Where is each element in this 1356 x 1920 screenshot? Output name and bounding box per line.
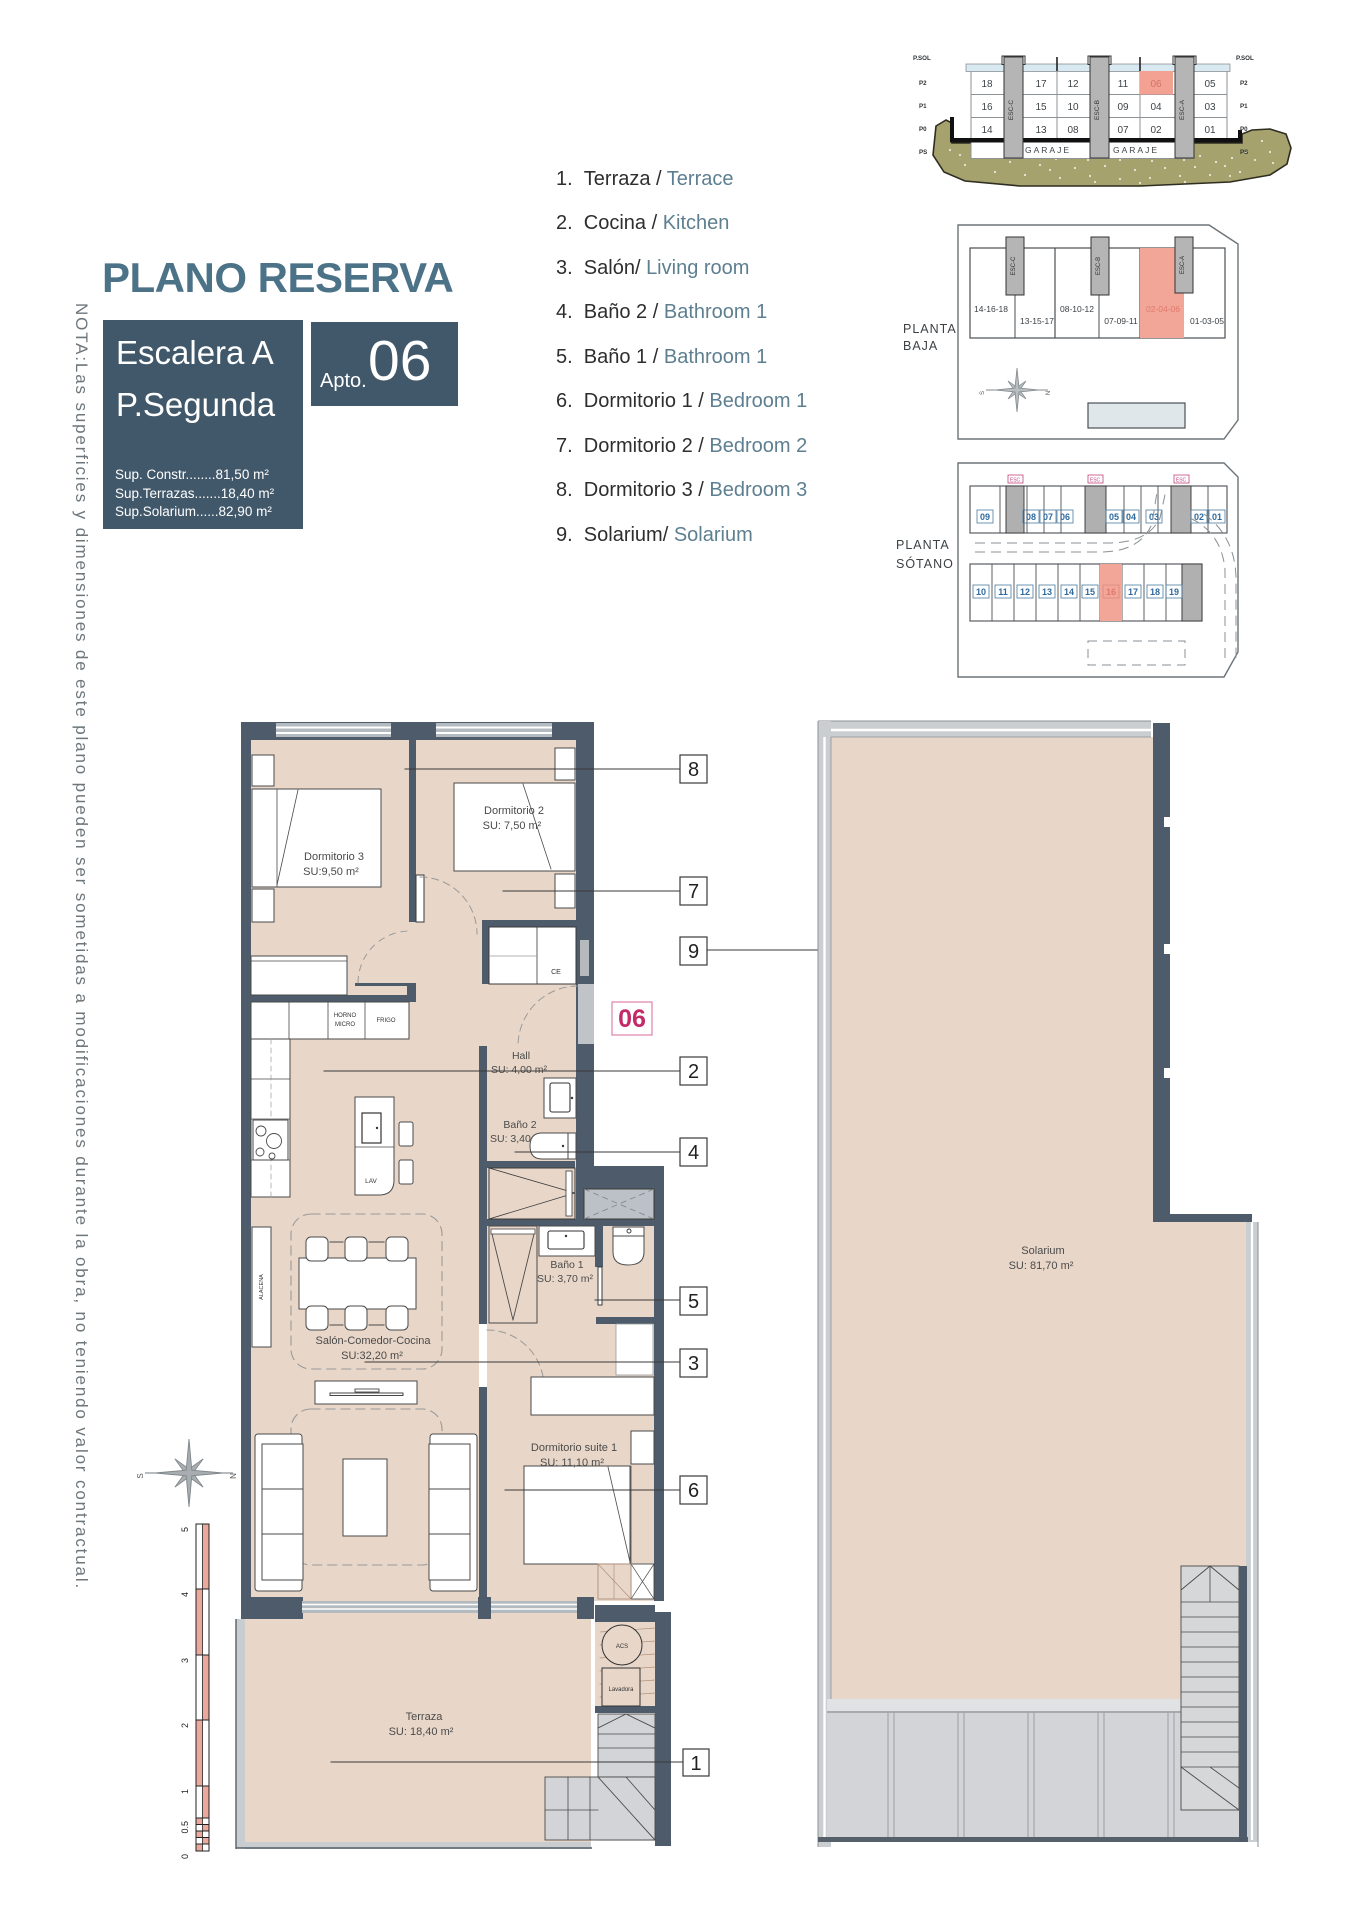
svg-text:ESC-B: ESC-B <box>1096 257 1102 275</box>
svg-text:02: 02 <box>1150 125 1162 136</box>
svg-text:ESC-B: ESC-B <box>1094 100 1101 120</box>
svg-text:SU: 81,70 m²: SU: 81,70 m² <box>1009 1260 1074 1272</box>
svg-text:ESC-C: ESC-C <box>1008 100 1015 121</box>
svg-text:13-15-17: 13-15-17 <box>1020 316 1054 326</box>
svg-text:N: N <box>1046 391 1052 395</box>
svg-text:SU: 3,70 m²: SU: 3,70 m² <box>537 1273 594 1285</box>
svg-text:ESC: ESC <box>1090 478 1101 484</box>
svg-text:03: 03 <box>1204 102 1216 113</box>
svg-text:07-09-11: 07-09-11 <box>1104 316 1138 326</box>
svg-text:02-04-06: 02-04-06 <box>1146 304 1180 314</box>
svg-text:12: 12 <box>1020 587 1030 597</box>
svg-text:16: 16 <box>1106 587 1116 597</box>
svg-text:0.5: 0.5 <box>180 1821 190 1834</box>
svg-text:S: S <box>980 391 986 395</box>
svg-text:Salón-Comedor-Cocina: Salón-Comedor-Cocina <box>316 1335 432 1347</box>
svg-text:S: S <box>136 1473 145 1478</box>
svg-text:GARAJE: GARAJE <box>1025 145 1071 155</box>
svg-text:SU:32,20 m²: SU:32,20 m² <box>341 1350 403 1362</box>
svg-text:Dormitorio 3: Dormitorio 3 <box>304 851 364 863</box>
svg-text:Terraza: Terraza <box>406 1711 444 1723</box>
svg-text:08-10-12: 08-10-12 <box>1060 304 1094 314</box>
svg-text:17: 17 <box>1128 587 1138 597</box>
svg-text:Lavadora: Lavadora <box>608 1687 634 1693</box>
svg-text:11: 11 <box>998 587 1008 597</box>
svg-text:08: 08 <box>1067 125 1079 136</box>
svg-text:04: 04 <box>1126 512 1136 522</box>
svg-text:ALACENA: ALACENA <box>259 1274 265 1300</box>
svg-text:P2: P2 <box>919 80 927 87</box>
svg-text:16: 16 <box>981 102 993 113</box>
svg-text:1: 1 <box>180 1789 190 1794</box>
svg-text:SU: 11,10 m²: SU: 11,10 m² <box>540 1457 604 1469</box>
svg-text:Solarium: Solarium <box>1021 1245 1064 1257</box>
svg-text:06: 06 <box>1060 512 1070 522</box>
svg-text:1: 1 <box>690 1753 701 1775</box>
svg-text:P1: P1 <box>1240 103 1248 110</box>
svg-text:18: 18 <box>1150 587 1160 597</box>
svg-text:0: 0 <box>180 1854 190 1859</box>
svg-text:4: 4 <box>688 1142 699 1164</box>
svg-text:10: 10 <box>1067 102 1079 113</box>
svg-text:P0: P0 <box>919 126 927 133</box>
svg-text:PS: PS <box>1240 149 1248 156</box>
svg-text:P.SOL: P.SOL <box>1236 55 1254 62</box>
svg-text:P.SOL: P.SOL <box>913 55 931 62</box>
svg-text:5: 5 <box>180 1527 190 1532</box>
svg-text:ESC: ESC <box>1010 478 1021 484</box>
svg-text:8: 8 <box>688 759 699 781</box>
svg-text:18: 18 <box>981 79 993 90</box>
svg-text:PS: PS <box>919 149 927 156</box>
svg-text:3: 3 <box>688 1353 699 1375</box>
svg-text:04: 04 <box>1150 102 1162 113</box>
svg-text:12: 12 <box>1067 79 1079 90</box>
svg-text:PLANTA: PLANTA <box>903 322 957 336</box>
svg-text:5: 5 <box>688 1291 699 1313</box>
svg-text:01: 01 <box>1212 512 1222 522</box>
svg-text:SU:9,50 m²: SU:9,50 m² <box>303 866 359 878</box>
svg-text:ESC: ESC <box>1176 478 1187 484</box>
svg-text:01: 01 <box>1204 125 1216 136</box>
svg-text:SU: 7,50 m²: SU: 7,50 m² <box>483 820 542 832</box>
svg-text:CE: CE <box>551 969 561 976</box>
svg-text:Dormitorio suite 1: Dormitorio suite 1 <box>531 1442 617 1454</box>
svg-text:09: 09 <box>980 512 990 522</box>
svg-text:19: 19 <box>1169 587 1179 597</box>
svg-text:13: 13 <box>1042 587 1052 597</box>
svg-text:11: 11 <box>1118 79 1129 90</box>
svg-text:08: 08 <box>1026 512 1036 522</box>
svg-text:SÓTANO: SÓTANO <box>896 556 954 571</box>
svg-text:P1: P1 <box>919 103 927 110</box>
svg-text:MICRO: MICRO <box>335 1022 355 1028</box>
svg-text:6: 6 <box>688 1480 699 1502</box>
svg-text:Hall: Hall <box>512 1050 530 1062</box>
svg-text:14: 14 <box>1064 587 1074 597</box>
svg-text:01-03-05: 01-03-05 <box>1190 316 1224 326</box>
svg-text:06: 06 <box>618 1005 646 1033</box>
svg-text:7: 7 <box>688 881 699 903</box>
svg-text:17: 17 <box>1035 79 1047 90</box>
svg-text:LAV: LAV <box>365 1178 377 1185</box>
svg-text:4: 4 <box>180 1592 190 1597</box>
svg-text:9: 9 <box>688 941 699 963</box>
svg-text:14: 14 <box>981 125 993 136</box>
svg-text:09: 09 <box>1117 102 1129 113</box>
svg-text:P2: P2 <box>1240 80 1248 87</box>
svg-text:HORNO: HORNO <box>334 1013 357 1019</box>
svg-text:FRIGO: FRIGO <box>377 1018 396 1024</box>
svg-text:PLANTA: PLANTA <box>896 538 950 552</box>
svg-text:07: 07 <box>1043 512 1053 522</box>
svg-text:2: 2 <box>688 1061 699 1083</box>
svg-text:ESC-A: ESC-A <box>1180 256 1186 274</box>
svg-text:3: 3 <box>180 1658 190 1663</box>
svg-text:Dormitorio 2: Dormitorio 2 <box>484 805 544 817</box>
svg-text:ESC-A: ESC-A <box>1179 99 1186 120</box>
svg-text:SU: 4,00 m²: SU: 4,00 m² <box>491 1064 548 1076</box>
svg-text:GARAJE: GARAJE <box>1113 145 1159 155</box>
svg-text:07: 07 <box>1117 125 1129 136</box>
svg-text:N: N <box>229 1473 238 1479</box>
svg-text:ESC-C: ESC-C <box>1011 256 1017 275</box>
svg-text:05: 05 <box>1204 79 1216 90</box>
svg-text:2: 2 <box>180 1723 190 1728</box>
svg-text:05: 05 <box>1109 512 1119 522</box>
svg-text:SU: 18,40 m²: SU: 18,40 m² <box>389 1726 454 1738</box>
svg-text:Baño 2: Baño 2 <box>503 1119 536 1131</box>
svg-text:10: 10 <box>976 587 986 597</box>
svg-text:15: 15 <box>1035 102 1047 113</box>
svg-text:ACS: ACS <box>616 1644 628 1650</box>
svg-text:Baño 1: Baño 1 <box>550 1259 583 1271</box>
svg-text:06: 06 <box>1150 79 1162 90</box>
svg-text:P0: P0 <box>1240 126 1248 133</box>
svg-text:BAJA: BAJA <box>903 339 938 353</box>
svg-text:13: 13 <box>1035 125 1047 136</box>
svg-text:15: 15 <box>1085 587 1095 597</box>
svg-text:14-16-18: 14-16-18 <box>974 304 1008 314</box>
